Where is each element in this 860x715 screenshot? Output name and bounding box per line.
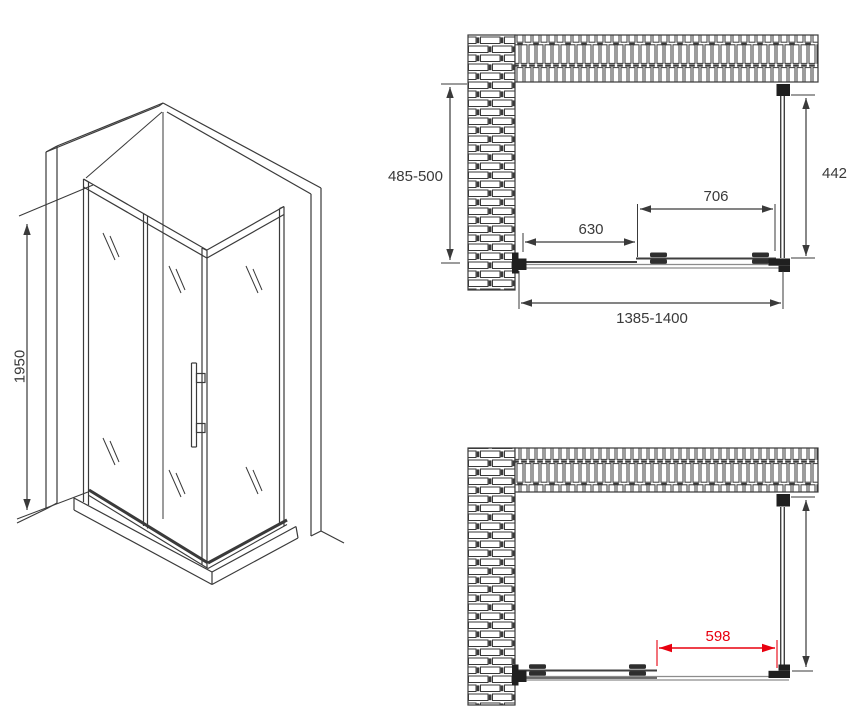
dim-height-label: 1950 [12, 342, 29, 392]
glass-reflection-marks [103, 233, 262, 497]
plan-open-dim-lines [791, 497, 815, 671]
drawing-linework [0, 0, 860, 715]
dim-side-glass-label: 442 [822, 165, 847, 182]
dim-door-label: 706 [691, 188, 741, 205]
door-handle [192, 363, 206, 447]
dim-opening-label: 598 [693, 628, 743, 645]
technical-drawing-canvas: 1950 485-500 442 706 630 1385-1400 598 [0, 0, 860, 715]
dim-overall-width-label: 1385-1400 [602, 310, 702, 327]
dim-fixed-panel-label: 630 [566, 221, 616, 238]
wall-fittings [512, 84, 790, 274]
plan-open-linework [468, 448, 818, 705]
wall-fittings-open [512, 494, 790, 686]
plan-closed-linework [441, 35, 818, 309]
iso-view-linework [17, 103, 344, 585]
dim-depth-label: 485-500 [358, 168, 443, 185]
